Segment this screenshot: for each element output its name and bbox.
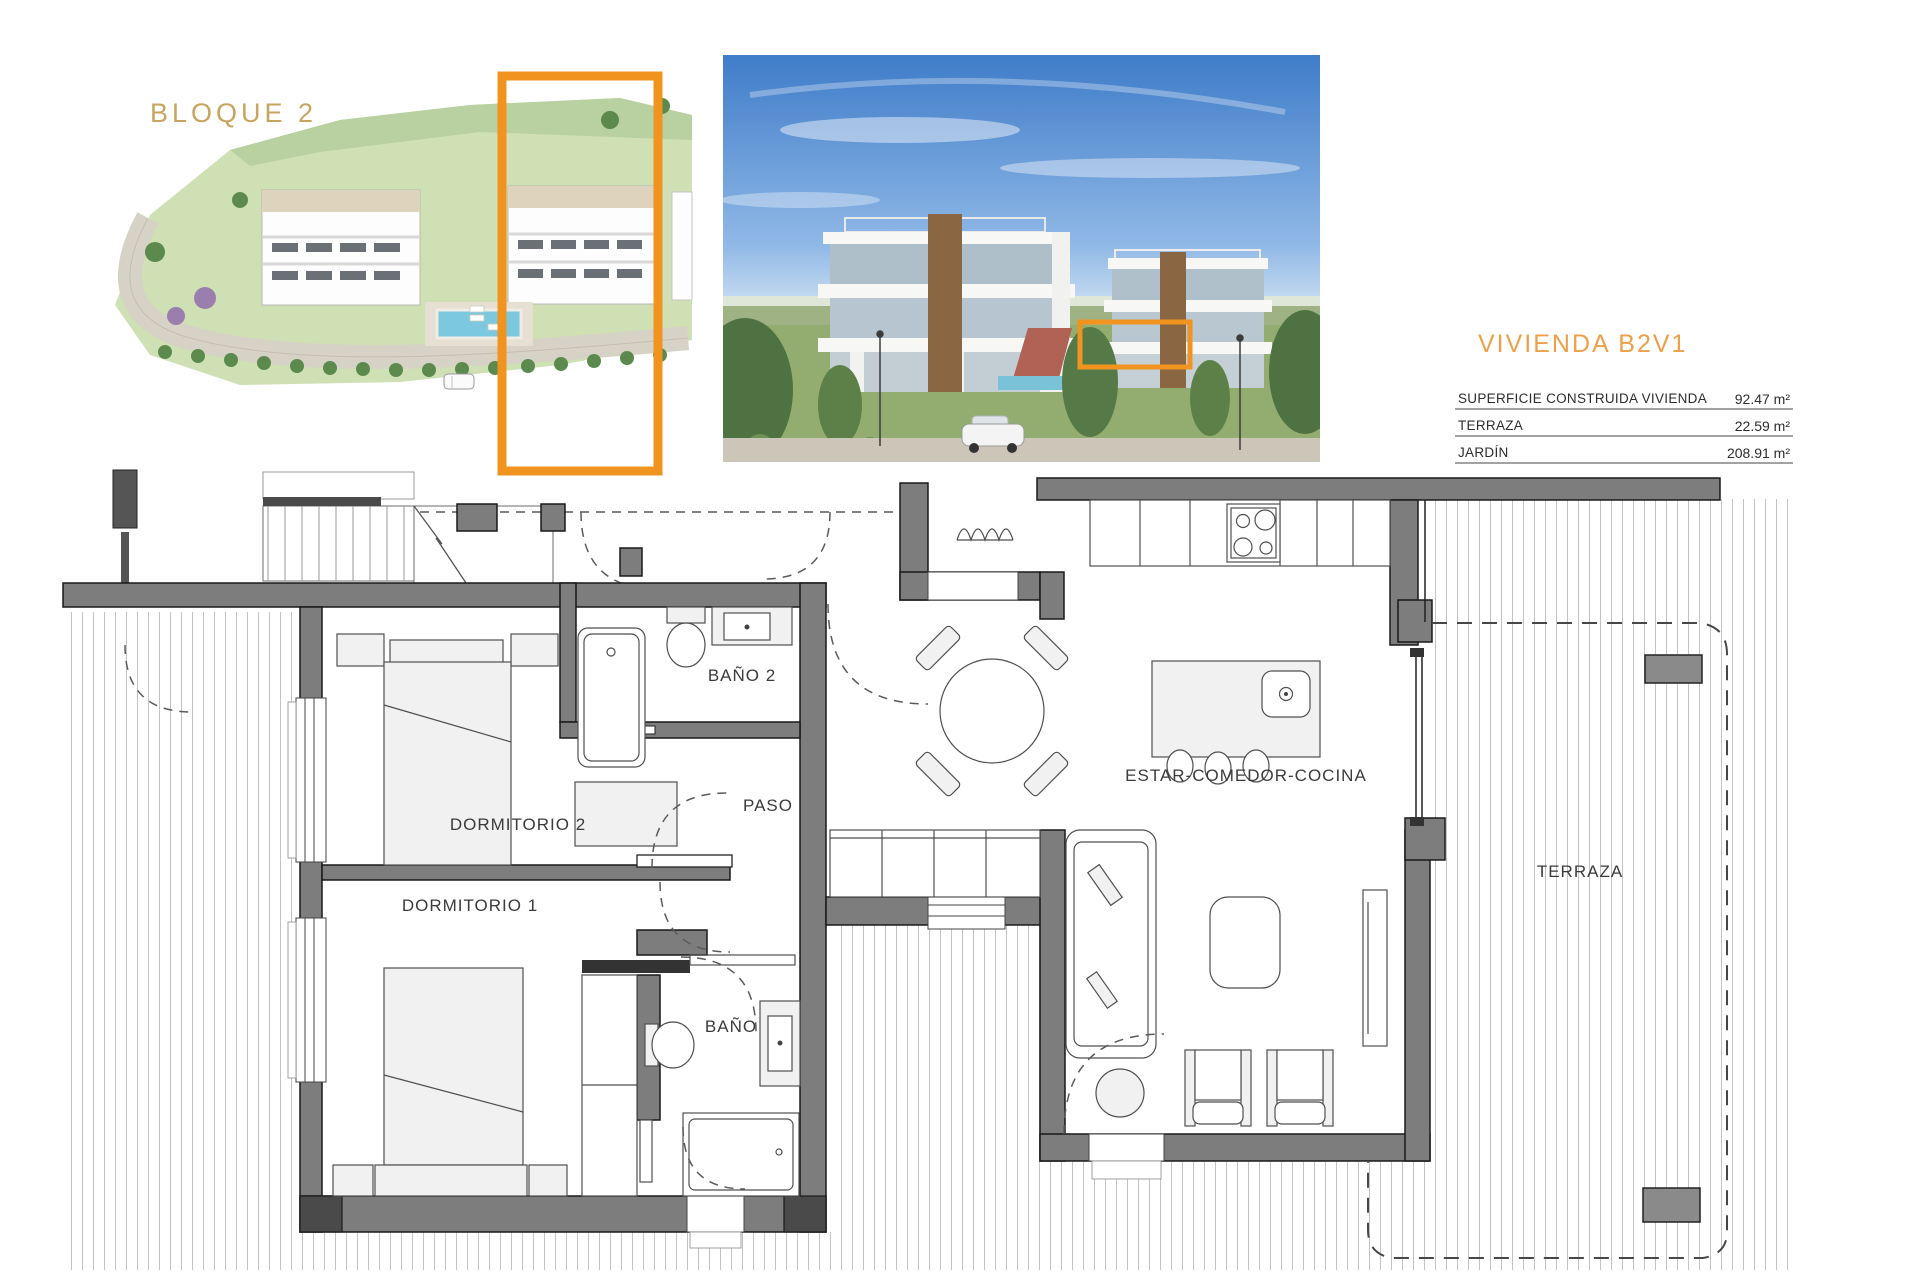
aerial-building-1	[262, 190, 420, 305]
area-row-label: TERRAZA	[1458, 418, 1523, 433]
room-label-estar: ESTAR-COMEDOR-COCINA	[1125, 766, 1367, 785]
side-table	[1096, 1069, 1144, 1117]
area-row-label: SUPERFICIE CONSTRUIDA VIVIENDA	[1458, 391, 1707, 406]
terraza-hatch	[1425, 499, 1790, 1270]
window	[288, 918, 326, 1082]
shower	[578, 628, 645, 767]
aerial-building-3-edge	[672, 192, 692, 300]
coffee-table	[1210, 897, 1280, 988]
living-east-wall	[1405, 830, 1430, 1161]
area-row-label: JARDÍN	[1458, 445, 1509, 460]
window	[288, 698, 326, 862]
planter	[1645, 655, 1702, 683]
hall-wardrobe	[830, 830, 1040, 897]
door	[687, 1196, 744, 1248]
room-label-paso: PASO	[743, 796, 793, 815]
door	[1089, 1134, 1164, 1179]
shower	[683, 1113, 799, 1196]
entry-door	[928, 572, 1018, 600]
area-row-value: 208.91 m²	[1727, 445, 1790, 461]
armchair	[1267, 1050, 1333, 1126]
window	[928, 893, 1005, 929]
round-table	[940, 659, 1044, 763]
bloque2-label: BLOQUE 2	[150, 98, 317, 128]
bed	[384, 662, 511, 865]
unit-title: VIVIENDA B2V1	[1478, 330, 1687, 358]
south-wall-bedroom-block	[300, 1196, 826, 1232]
toilet	[667, 623, 705, 667]
toilet	[652, 1022, 694, 1068]
east-wall-bedroom-block	[800, 583, 826, 1232]
nightstand	[511, 634, 558, 666]
floor-plan: BAÑO 2 DORMITORIO 2 PASO DORMITORIO 1 BA…	[63, 470, 1790, 1270]
headboard	[375, 1165, 527, 1196]
room-label-dormitorio1: DORMITORIO 1	[402, 896, 538, 915]
toilet-tank	[667, 607, 705, 623]
tv-cabinet	[1363, 890, 1387, 1046]
kitchen-north-wall	[1037, 478, 1720, 500]
room-label-dormitorio2: DORMITORIO 2	[450, 815, 586, 834]
area-row-value: 22.59 m²	[1735, 418, 1791, 434]
sofa	[1066, 830, 1156, 1058]
nightstand	[529, 1165, 567, 1196]
nightstand	[337, 634, 384, 666]
dresser	[575, 782, 677, 846]
living-west-wall	[1040, 830, 1065, 1161]
brochure-page: BLOQUE 2	[0, 0, 1920, 1280]
car-aerial	[444, 374, 474, 389]
nightstand	[333, 1165, 373, 1196]
north-wall-bedroom-block	[63, 583, 826, 607]
room-label-bano2: BAÑO 2	[708, 666, 776, 685]
room-label-bano: BAÑO	[705, 1017, 757, 1036]
pool	[437, 310, 521, 338]
aerial-building-2	[508, 186, 658, 304]
planter	[1643, 1188, 1700, 1222]
wardrobe-track	[582, 960, 690, 973]
door-leaf	[640, 1120, 652, 1182]
area-row-value: 92.47 m²	[1735, 391, 1791, 407]
bed	[384, 968, 523, 1165]
armchair	[1185, 1050, 1251, 1126]
sliding-door	[637, 855, 732, 867]
wood-facade-core	[928, 214, 962, 392]
room-label-terraza: TERRAZA	[1537, 862, 1623, 881]
pillow	[390, 640, 503, 664]
street-photo-render	[697, 55, 1341, 467]
